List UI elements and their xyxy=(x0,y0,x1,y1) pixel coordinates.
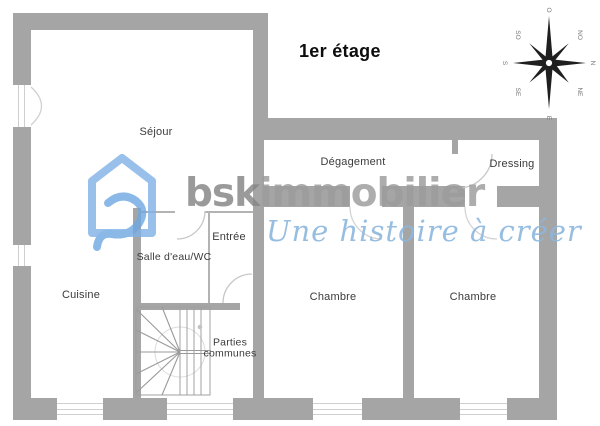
window-arc-sejour xyxy=(31,87,42,125)
compass-center-dot xyxy=(545,59,553,67)
room-label-cuisine: Cuisine xyxy=(62,289,100,301)
room-label-entree: Entrée xyxy=(212,231,246,243)
compass-label-n: N xyxy=(589,61,596,66)
plan-linework: O N E S NO SO SE NE xyxy=(0,0,600,426)
door-arc-entree xyxy=(223,274,252,303)
door-arc-salle-deau xyxy=(177,211,205,239)
door-arc-dressing xyxy=(458,154,492,188)
compass-label-ne: NE xyxy=(576,87,583,97)
page-title: 1er étage xyxy=(299,41,381,62)
room-label-parties-communes: Parties communes xyxy=(193,338,267,361)
door-arc-chambre-1 xyxy=(350,207,382,239)
compass-label-o: O xyxy=(545,7,552,12)
room-label-salle-deau: Salle d'eau/WC xyxy=(137,251,212,263)
compass-label-se: SE xyxy=(514,88,521,97)
compass-label-no: NO xyxy=(576,30,583,40)
room-label-chambre-1: Chambre xyxy=(310,291,357,303)
room-label-chambre-2: Chambre xyxy=(450,291,497,303)
floor-plan-canvas: O N E S NO SO SE NE 1er étage Séjour Cui… xyxy=(0,0,600,426)
compass-label-so: SO xyxy=(514,30,521,39)
stair-post-dot xyxy=(198,325,203,330)
door-arc-chambre-2 xyxy=(465,207,497,239)
room-label-sejour: Séjour xyxy=(140,126,173,138)
compass-label-s: S xyxy=(501,61,508,66)
compass-needle-up xyxy=(545,16,553,63)
room-label-dressing: Dressing xyxy=(489,158,534,170)
compass-needle-down xyxy=(545,63,553,109)
compass-label-e: E xyxy=(545,116,552,121)
room-label-degagement: Dégagement xyxy=(321,156,386,168)
compass-rose: O N E S NO SO SE NE xyxy=(501,7,596,120)
